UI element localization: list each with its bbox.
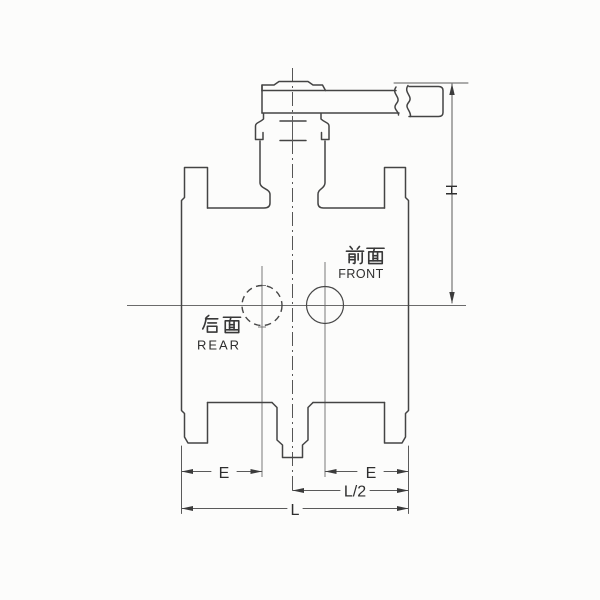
handle-assembly: [262, 82, 443, 117]
front-cn-label: [346, 246, 384, 263]
l-arrow-left: [182, 506, 194, 511]
dimension-e-left: E: [182, 465, 263, 482]
rear-annotation: REAR: [197, 315, 241, 352]
half-l-arrow-left: [293, 488, 305, 493]
centerlines: [127, 68, 466, 494]
e-right-label: E: [366, 465, 377, 482]
bonnet-pad: [256, 114, 330, 144]
half-l-arrow-right: [397, 488, 409, 493]
e-left-arrow-left: [182, 469, 194, 474]
front-en-label: FRONT: [338, 267, 384, 281]
rear-cn-char-1: [203, 315, 218, 332]
front-annotation: FRONT: [338, 246, 384, 281]
dimension-e-right: E: [325, 465, 409, 482]
rear-en-label: REAR: [197, 338, 241, 353]
e-right-arrow-left: [325, 469, 337, 474]
front-cn-char-2: [367, 248, 384, 263]
bonnet-left-ear: [256, 114, 264, 140]
h-arrow-up: [449, 84, 454, 96]
valve-body: [208, 141, 385, 458]
drawing-canvas: H E E L/2: [0, 0, 600, 600]
l-label: L: [291, 502, 300, 519]
valve-outline-drawing: H E E L/2: [0, 0, 600, 600]
handle-cap-plate: [262, 82, 326, 92]
handle-break-line-1: [395, 87, 399, 115]
half-l-label: L/2: [344, 484, 366, 501]
dimension-half-l: L/2: [293, 484, 409, 501]
dimension-l: L: [182, 502, 409, 519]
e-left-arrow-right: [251, 469, 263, 474]
h-arrow-down: [449, 292, 454, 304]
rear-cn-char-2: [223, 317, 240, 332]
h-label: H: [442, 184, 459, 196]
e-left-label: E: [219, 465, 230, 482]
body-neck-left: [208, 141, 271, 208]
bonnet-right-ear: [321, 114, 329, 140]
handle-break-line-2: [407, 86, 411, 117]
front-cn-char-1: [346, 246, 363, 263]
body-neck-right: [318, 141, 385, 208]
h-label-group: H: [442, 184, 459, 196]
handle-end-grip: [409, 87, 443, 117]
rear-cn-label: [203, 315, 241, 332]
e-right-arrow-right: [397, 469, 409, 474]
l-arrow-right: [397, 506, 409, 511]
